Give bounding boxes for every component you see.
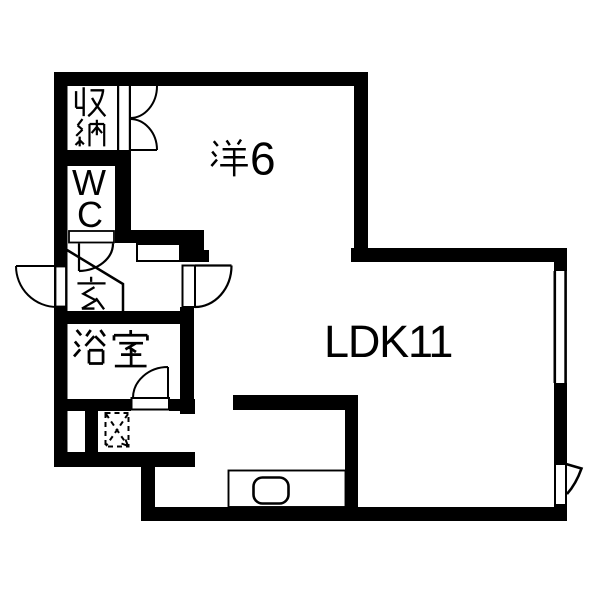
svg-text:6: 6 xyxy=(250,133,276,185)
svg-text:C: C xyxy=(77,194,103,235)
svg-text:LDK11: LDK11 xyxy=(324,316,452,367)
